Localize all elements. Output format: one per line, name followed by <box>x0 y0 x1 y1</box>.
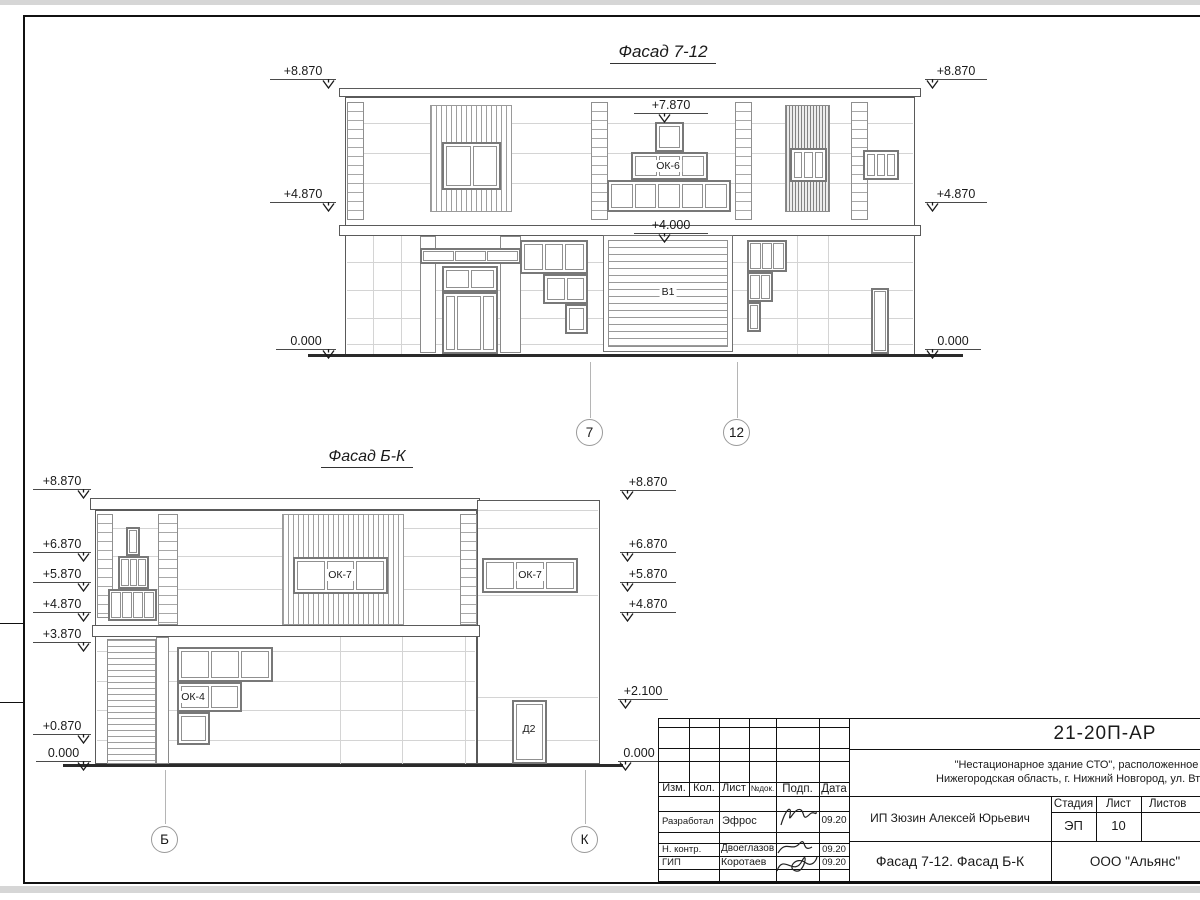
facade-b-k-title: Фасад Б-К <box>297 448 437 466</box>
axis-leader <box>165 770 166 824</box>
window-ok6-top <box>655 122 684 152</box>
col-header-ndok: №док. <box>749 782 776 796</box>
row-date: 09.20 <box>819 811 849 832</box>
quoin-column <box>347 102 364 220</box>
elevation-mark: +8.870 <box>925 64 987 80</box>
title-block: Изм. Кол. Лист №док. Подп. Дата Разработ… <box>658 718 1200 882</box>
ground-line <box>308 354 963 357</box>
ground-line <box>63 764 623 767</box>
elevation-mark: +4.870 <box>925 187 987 203</box>
col-header-kol: Кол. <box>689 782 719 796</box>
elevation-mark: +2.100 <box>618 684 668 700</box>
window-label-ok6: ОК-6 <box>654 160 682 172</box>
elevation-mark: +5.870 <box>33 567 91 583</box>
stepped-window-top <box>747 240 787 272</box>
window-label-ok7: ОК-7 <box>326 569 354 581</box>
row-name: Эфрос <box>722 811 775 832</box>
parapet-coping <box>339 88 921 97</box>
roller-gate <box>107 639 156 764</box>
axis-bubble-7: 7 <box>576 419 603 446</box>
elevation-mark: +8.870 <box>620 475 676 491</box>
row-name: Коротаев <box>721 856 776 869</box>
elevation-mark: +6.870 <box>33 537 91 553</box>
axis-bubble-b: Б <box>151 826 178 853</box>
project-address: "Нестационарное здание СТО", расположенн… <box>849 749 1200 796</box>
window-label-ok7: ОК-7 <box>516 569 544 581</box>
sheet-title: Фасад 7-12. Фасад Б-К <box>849 841 1051 883</box>
row-date: 09.20 <box>819 856 849 869</box>
frame-margin-divider <box>0 702 23 703</box>
quoin-column <box>158 514 178 625</box>
window-2pane <box>442 142 501 190</box>
window-3pane <box>863 150 899 180</box>
axis-bubble-12: 12 <box>723 419 750 446</box>
client-name: ИП Зюзин Алексей Юрьевич <box>849 796 1051 841</box>
floor-band <box>92 625 480 637</box>
col-header-data: Дата <box>819 782 849 796</box>
window-3pane <box>790 148 827 182</box>
elevation-mark: +4.870 <box>620 597 676 613</box>
entrance-header-band <box>420 248 521 264</box>
elevation-mark: 0.000 <box>618 746 660 762</box>
col-header-podp: Подп. <box>776 782 819 796</box>
row-role: Н. контр. <box>662 843 718 856</box>
frame-margin-divider <box>0 623 23 624</box>
elevation-mark: 0.000 <box>925 334 981 350</box>
col-header-list: Лист <box>719 782 749 796</box>
facade-7-12-title: Фасад 7-12 <box>593 42 733 62</box>
row-role: ГИП <box>662 856 718 869</box>
elevation-mark: +8.870 <box>33 474 91 490</box>
door-label-d2: Д2 <box>521 723 538 735</box>
axis-bubble-k: К <box>571 826 598 853</box>
parapet-coping <box>90 498 480 510</box>
elevation-mark: +0.870 <box>33 719 91 735</box>
stepped-window-mid <box>543 274 588 304</box>
elevation-mark: 0.000 <box>276 334 336 350</box>
elevation-mark: +3.870 <box>33 627 91 643</box>
stepped-window-bottom <box>747 302 761 332</box>
elevation-mark: +5.870 <box>620 567 676 583</box>
gate-label-v1: В1 <box>660 286 677 298</box>
stepped-window-mid <box>747 272 773 302</box>
axis-leader <box>590 362 591 418</box>
row-name: Двоеглазов <box>721 843 776 856</box>
elevation-mark: +8.870 <box>270 64 336 80</box>
stepped-window-bottom <box>108 589 157 621</box>
doc-number: 21-20П-АР <box>849 719 1200 749</box>
col-header-izm: Изм. <box>659 782 689 796</box>
stage-header: Стадия <box>1051 796 1096 812</box>
stage-value: ЭП <box>1051 812 1096 841</box>
company-name: ООО "Альянс" <box>1051 841 1200 883</box>
signature <box>772 837 820 881</box>
quoin-column <box>591 102 608 220</box>
window-ok4-top <box>177 647 273 682</box>
facade-7-12-drawing: ОК-6 В1 <box>345 88 915 356</box>
sheet-edge-top <box>0 0 1200 5</box>
window-ok6-bottom <box>607 180 731 212</box>
sheets-header: Листов <box>1141 796 1200 812</box>
sheet-number: 10 <box>1096 812 1141 841</box>
side-door <box>871 288 889 354</box>
pilaster <box>156 637 169 764</box>
quoin-column <box>735 102 752 220</box>
sheet-edge-bottom <box>0 886 1200 893</box>
row-role: Разработал <box>662 811 718 832</box>
entrance-door <box>442 292 498 354</box>
stepped-window-bottom <box>565 304 588 334</box>
elevation-mark: +7.870 <box>634 98 708 114</box>
quoin-column <box>460 514 477 625</box>
facade-b-k-drawing: ОК-7 ОК-7 ОК-4 Д2 <box>95 498 600 766</box>
axis-leader <box>737 362 738 418</box>
elevation-mark: 0.000 <box>36 746 91 762</box>
window-ok4-bottom <box>177 712 210 745</box>
elevation-mark: +4.000 <box>634 218 708 234</box>
stepped-window-mid <box>118 556 149 589</box>
window-label-ok4: ОК-4 <box>179 691 207 703</box>
stepped-window-top <box>126 527 140 556</box>
elevation-mark: +4.870 <box>270 187 336 203</box>
signature <box>777 801 819 831</box>
frame-top <box>23 15 1200 17</box>
stepped-window-top <box>520 240 588 274</box>
elevation-mark: +4.870 <box>33 597 91 613</box>
elevation-mark: +6.870 <box>620 537 676 553</box>
axis-leader <box>585 770 586 824</box>
frame-left <box>23 15 25 883</box>
sheet-header: Лист <box>1096 796 1141 812</box>
entrance-transom <box>442 266 498 292</box>
row-date: 09.20 <box>819 843 849 856</box>
